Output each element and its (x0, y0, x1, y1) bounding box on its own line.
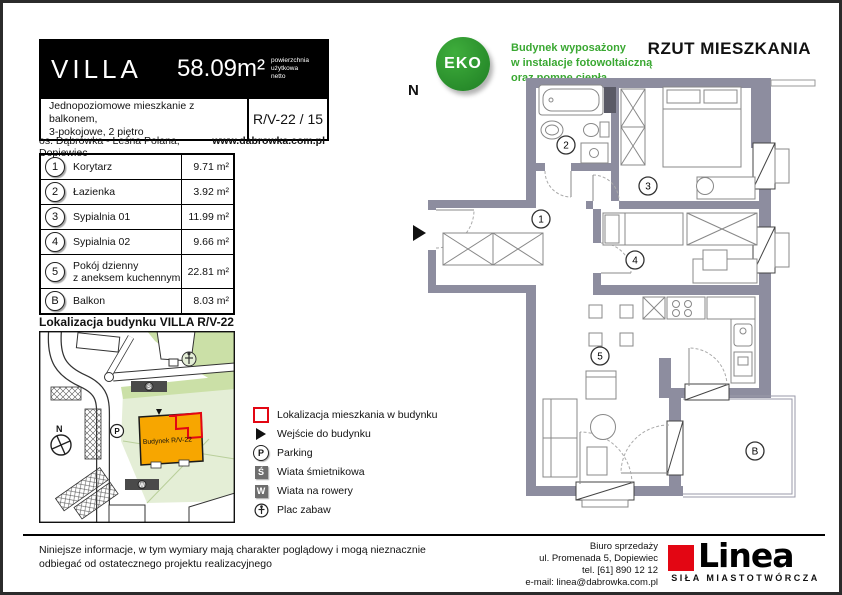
plan-balcony-outline (683, 396, 795, 497)
plan-bathroom-fixtures (539, 85, 616, 163)
email-link[interactable]: e-mail: linea@dabrowka.com.pl (525, 577, 658, 588)
logo-red-square (668, 545, 694, 571)
table-row: 1 Korytarz 9.71 m² (41, 155, 233, 180)
svg-text:P: P (114, 427, 120, 436)
table-row: 3 Sypialnia 01 11.99 m² (41, 205, 233, 230)
room-number-badge: 1 (45, 157, 65, 177)
footer-disclaimer: Niniejsze informacje, w tym wymiary mają… (39, 543, 459, 571)
svg-text:1: 1 (538, 215, 544, 226)
logo-wordmark: Linea (698, 539, 793, 573)
playground-icon (253, 503, 269, 518)
map-title: Lokalizacja budynku VILLA R/V-22 (39, 315, 234, 329)
table-row: 4 Sypialnia 02 9.66 m² (41, 230, 233, 255)
sales-office-contact: Biuro sprzedaży ul. Promenada 5, Dopiewi… (433, 541, 658, 589)
location-map-svg: Ś W Budynek R/V-22 (39, 331, 235, 523)
plan-compass-icon: N (408, 82, 419, 118)
location-map: Ś W Budynek R/V-22 (39, 331, 235, 528)
svg-text:Ś: Ś (147, 384, 151, 391)
page: VILLA 58.09m² powierzchnia użytkowa nett… (0, 0, 842, 595)
area-group: 58.09m² powierzchnia użytkowa netto (177, 55, 317, 83)
plan-living-furniture (543, 305, 633, 477)
plan-eave-line (771, 80, 815, 86)
room-number-badge: 2 (45, 182, 65, 202)
area-value: 58.09m² (177, 55, 265, 83)
svg-text:2: 2 (563, 141, 569, 152)
trash-shelter-icon: Ś (253, 466, 269, 479)
svg-text:5: 5 (597, 352, 603, 363)
unit-code: R/V-22 / 15 (247, 99, 327, 139)
svg-text:N: N (56, 424, 63, 434)
room-table: 1 Korytarz 9.71 m² 2 Łazienka 3.92 m² 3 … (39, 153, 235, 315)
floor-plan: N 1 2 3 4 5 B (408, 68, 833, 533)
parking-icon: P (253, 445, 269, 461)
svg-text:N: N (408, 82, 419, 99)
apartment-description: Jednopoziomowe mieszkanie z balkonem, 3-… (41, 99, 247, 139)
map-playground-icon (182, 352, 196, 366)
apartment-location-icon (253, 407, 269, 423)
map-bike-shelter: W (125, 479, 159, 490)
header-black-bar: VILLA 58.09m² powierzchnia użytkowa nett… (41, 41, 327, 97)
svg-text:4: 4 (632, 256, 638, 267)
building-entrance-icon (253, 428, 269, 440)
room-number-badge: B (45, 291, 65, 311)
svg-text:3: 3 (645, 182, 651, 193)
map-parking-icon: P (111, 425, 124, 438)
linea-logo: Linea SIŁA MIASTOTWÓRCZA (668, 539, 823, 583)
svg-text:W: W (139, 483, 145, 489)
table-row: B Balkon 8.03 m² (41, 289, 233, 313)
entrance-arrow-icon (413, 225, 426, 241)
table-row: 2 Łazienka 3.92 m² (41, 180, 233, 205)
bike-shelter-icon: W (253, 485, 269, 498)
room-number-badge: 4 (45, 232, 65, 252)
room-number-badge: 5 (45, 262, 65, 282)
svg-text:B: B (752, 447, 759, 458)
map-building-highlight[interactable]: Budynek R/V-22 (139, 409, 203, 468)
plan-corridor-furniture (443, 233, 543, 265)
area-note: powierzchnia użytkowa netto (271, 57, 317, 81)
room-number-badge: 3 (45, 207, 65, 227)
logo-tagline: SIŁA MIASTOTWÓRCZA (668, 573, 823, 583)
header-card: VILLA 58.09m² powierzchnia użytkowa nett… (39, 39, 329, 141)
brand-title: VILLA (51, 54, 142, 85)
header-description-row: Jednopoziomowe mieszkanie z balkonem, 3-… (41, 97, 327, 139)
table-row: 5 Pokój dzienny z aneksem kuchennym 22.8… (41, 255, 233, 289)
page-title: RZUT MIESZKANIA (563, 39, 811, 59)
map-trash-shelter: Ś (131, 381, 167, 392)
